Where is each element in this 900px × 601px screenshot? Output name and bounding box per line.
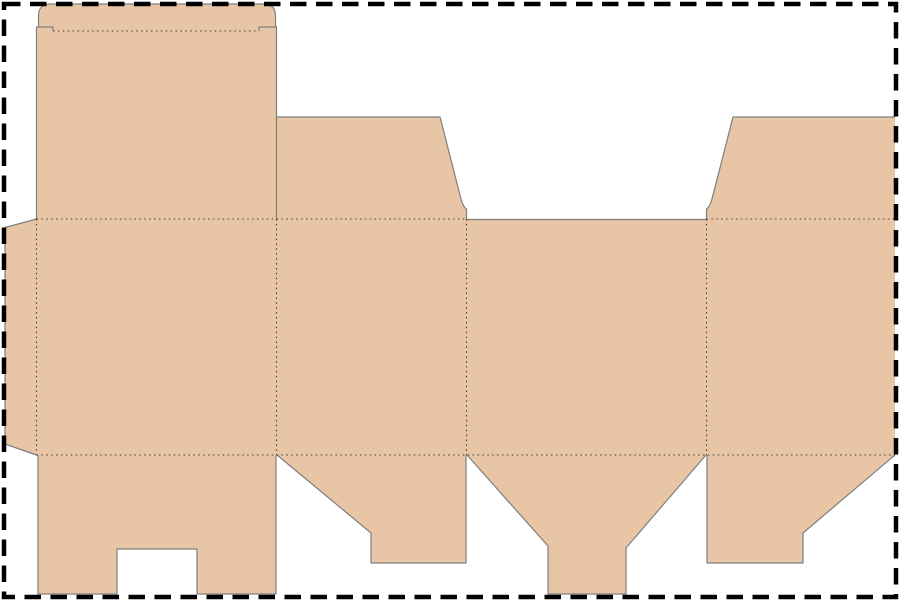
carton-blank-fill: [5, 4, 895, 594]
dieline-canvas: [0, 0, 900, 601]
carton-dieline-page: [0, 0, 900, 601]
